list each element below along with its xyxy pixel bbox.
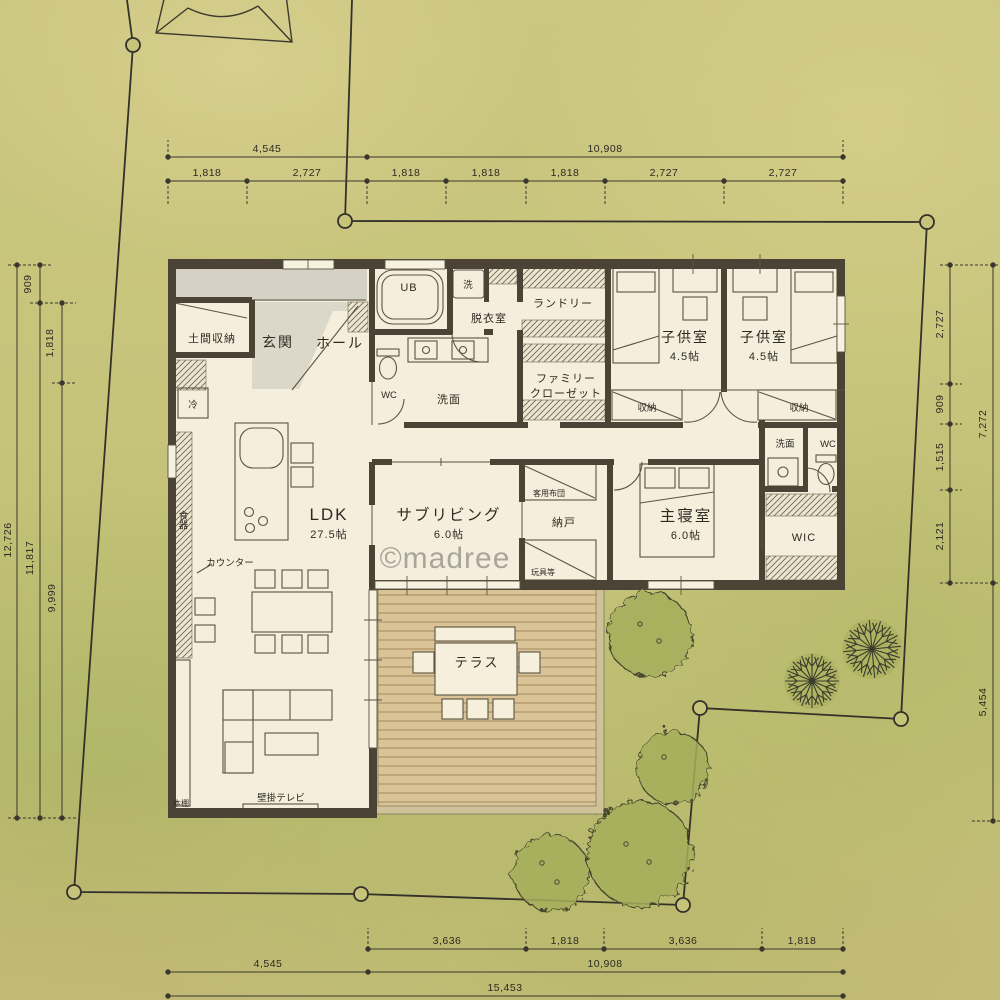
porch xyxy=(171,268,367,301)
house: 土間収納 玄関 ホール 冷 UB 洗 脱衣室 WC 洗面 ランドリー ファミリー… xyxy=(168,254,849,818)
dim-bottom-seg3: 3,636 xyxy=(669,935,698,947)
label-genkan: 玄関 xyxy=(262,334,294,350)
dim-left-12726: 12,726 xyxy=(2,522,14,557)
label-storage1: 収納 xyxy=(637,402,656,414)
label-ldk-size: 27.5帖 xyxy=(310,528,347,541)
label-ldk: LDK xyxy=(309,505,348,524)
label-famiclo1: ファミリー xyxy=(536,373,596,385)
tree xyxy=(584,798,690,904)
label-terrace: テラス xyxy=(455,655,500,670)
dim-right-5454: 5,454 xyxy=(977,688,989,717)
label-toys: 玩具等 xyxy=(531,567,555,577)
label-kids1: 子供室 xyxy=(661,329,709,345)
entrance-door xyxy=(283,260,334,269)
label-laundry: ランドリー xyxy=(533,298,593,310)
label-senmen1: 洗面 xyxy=(437,393,461,406)
label-subliving-size: 6.0帖 xyxy=(434,528,464,541)
label-senmen2: 洗面 xyxy=(775,438,794,450)
dim-right-2727: 2,727 xyxy=(934,310,946,339)
label-counter: カウンター xyxy=(206,558,254,569)
tree xyxy=(605,590,689,674)
label-wc1: WC xyxy=(381,390,397,401)
label-famiclo2: クローゼット xyxy=(530,387,602,400)
label-bookshelf: 本棚 xyxy=(173,798,189,808)
dim-right-1515: 1,515 xyxy=(934,443,946,472)
top-structure xyxy=(156,0,292,42)
label-fridge: 冷 xyxy=(188,399,198,411)
dim-left-909: 909 xyxy=(22,274,34,293)
dim-left-1818: 1,818 xyxy=(44,329,56,358)
label-kids1-size: 4.5帖 xyxy=(670,350,700,363)
dim-bottom-seg1: 3,636 xyxy=(433,935,462,947)
label-master: 主寝室 xyxy=(660,506,713,525)
dim-right-2121: 2,121 xyxy=(934,522,946,551)
dim-bottom-total-right: 10,908 xyxy=(587,958,622,970)
label-ub: UB xyxy=(400,282,417,294)
dim-top-seg4: 1,818 xyxy=(472,167,501,179)
label-wc2: WC xyxy=(820,439,836,450)
dim-top-seg6: 2,727 xyxy=(650,167,679,179)
dim-top-seg7: 2,727 xyxy=(769,167,798,179)
label-wic: WIC xyxy=(792,532,816,544)
dim-top-seg5: 1,818 xyxy=(551,167,580,179)
label-master-size: 6.0帖 xyxy=(671,529,701,542)
label-wall-tv: 壁掛テレビ xyxy=(257,792,305,804)
dim-left-11817: 11,817 xyxy=(24,541,36,575)
label-kids2-size: 4.5帖 xyxy=(749,350,779,363)
tree xyxy=(634,729,706,801)
dim-top-seg3: 1,818 xyxy=(392,167,421,179)
label-doma: 土間収納 xyxy=(188,332,236,345)
tree xyxy=(510,832,586,908)
label-storage2: 収納 xyxy=(789,402,808,414)
floor-plan-drawing: 4,545 10,908 1,818 2,727 1,818 1,818 1,8… xyxy=(0,0,1000,1000)
dim-top-total-left: 4,545 xyxy=(253,143,282,155)
label-washer: 洗 xyxy=(463,279,473,291)
dim-top-seg1: 1,818 xyxy=(193,167,222,179)
dim-bottom-total: 15,453 xyxy=(487,982,522,994)
label-guest-futon: 客用布団 xyxy=(533,488,565,498)
dim-bottom-seg4: 1,818 xyxy=(788,935,817,947)
dim-top-seg2: 2,727 xyxy=(293,167,322,179)
label-subliving: サブリビング xyxy=(396,505,501,524)
dim-left-9999: 9,999 xyxy=(46,584,58,613)
label-nando: 納戸 xyxy=(552,516,576,529)
label-kids2: 子供室 xyxy=(740,329,788,345)
dim-bottom-total-left: 4,545 xyxy=(254,958,283,970)
watermark: ©madree xyxy=(380,542,511,575)
dim-right-7272: 7,272 xyxy=(977,410,989,439)
dim-top-total-right: 10,908 xyxy=(587,143,622,155)
terrace-deck xyxy=(372,582,604,814)
dim-bottom-seg2: 1,818 xyxy=(551,935,580,947)
label-dishes: 食器 xyxy=(177,510,189,530)
label-hall: ホール xyxy=(316,335,364,351)
dim-right-909: 909 xyxy=(934,394,946,413)
label-datsuishitsu: 脱衣室 xyxy=(471,311,507,325)
